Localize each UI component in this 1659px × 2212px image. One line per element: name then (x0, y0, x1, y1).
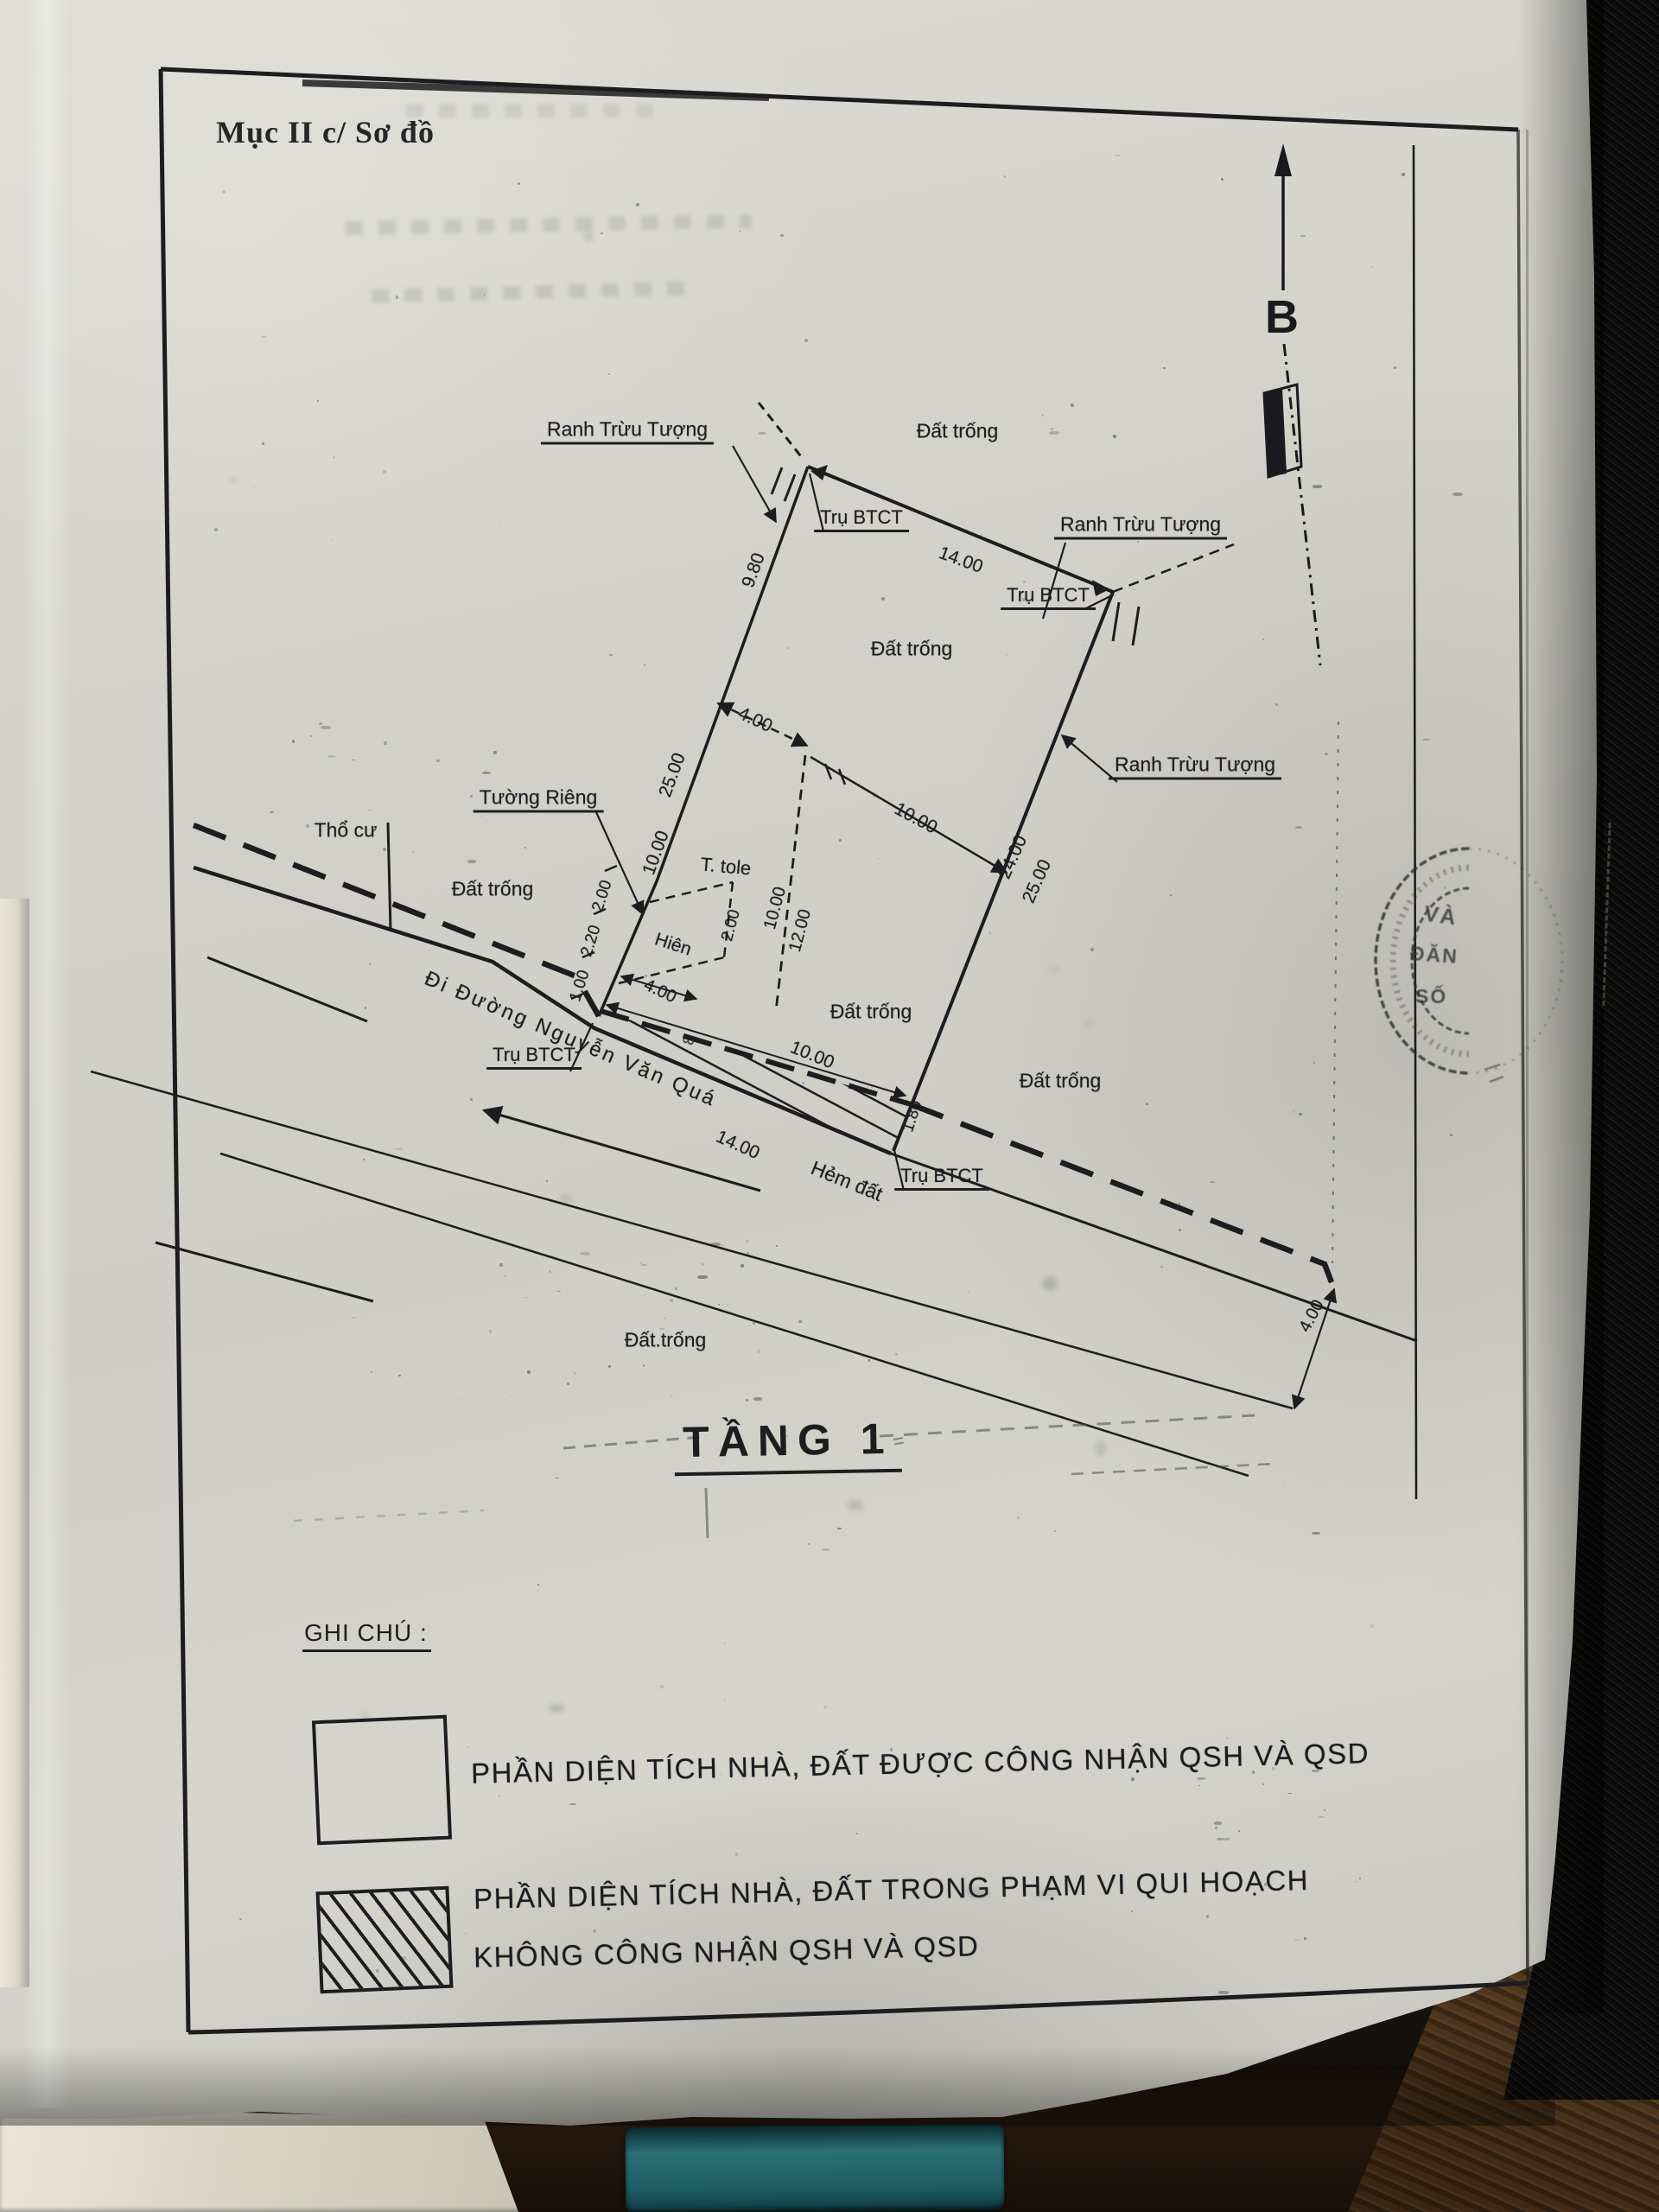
floor-title: TẦNG 1 (674, 1414, 903, 1477)
dashed-boundary-right (911, 1104, 1334, 1289)
road-centerline-arrow (484, 1110, 760, 1191)
stamp-fragment-so: SỐ (1415, 985, 1447, 1008)
tru-btct-right-label: Trụ BTCT (1001, 586, 1096, 610)
tuong-rieng-label: Tường Riêng (474, 788, 604, 813)
circular-stamp (1376, 849, 1562, 1082)
road-lower-edge (91, 1071, 1293, 1408)
t-tole-wall (776, 755, 805, 1011)
scanned-site-plan-photo: Mục II c/ Sơ đồ B Ranh Trừu TượngRanh Tr… (0, 0, 1659, 2212)
page-title: Mục II c/ Sơ đồ (216, 114, 435, 150)
legend-swatch-plain (312, 1715, 452, 1846)
right-boundary-line (1332, 145, 1417, 1499)
ranh-truu-tuong-mid-right-label: Ranh Trừu Tượng (1109, 755, 1281, 780)
dat-trong-upper-label: Đất trống (871, 639, 953, 659)
plot-left-edge (599, 467, 808, 1016)
road-upper-edge (194, 868, 891, 1154)
ranh-truu-tuong-top-right-label: Ranh Trừu Tượng (1054, 515, 1227, 540)
tru-btct-bottom-right-label: Trụ BTCT (894, 1166, 989, 1191)
stamp-fragment-va: VÀ (1422, 901, 1459, 931)
dat-trong-top-label: Đất trống (917, 422, 999, 442)
legend-swatch-hatched (315, 1886, 453, 1994)
t-tole-label: T. tole (700, 855, 752, 878)
dat-trong-center-label: Đất trống (830, 1002, 912, 1022)
stamp-fragment-dan: ĐĂN (1409, 942, 1459, 969)
north-label: B (1265, 290, 1299, 344)
north-arrow (1264, 143, 1320, 665)
dat-trong-bottom-left-label: Đất.trống (625, 1331, 707, 1351)
lot-connector (388, 823, 391, 931)
tho-cu-dashed-boundary (194, 825, 599, 1016)
legend-heading: GHI CHÚ : (302, 1619, 431, 1652)
ranh-truu-tuong-top-left-label: Ranh Trừu Tượng (541, 420, 714, 445)
tho-cu-label: Thổ cư (315, 821, 378, 841)
dat-trong-bottom-right-label: Đất trống (1020, 1071, 1102, 1091)
tru-btct-top-label: Trụ BTCT (814, 508, 909, 532)
dat-trong-left-label: Đất trống (452, 880, 534, 899)
